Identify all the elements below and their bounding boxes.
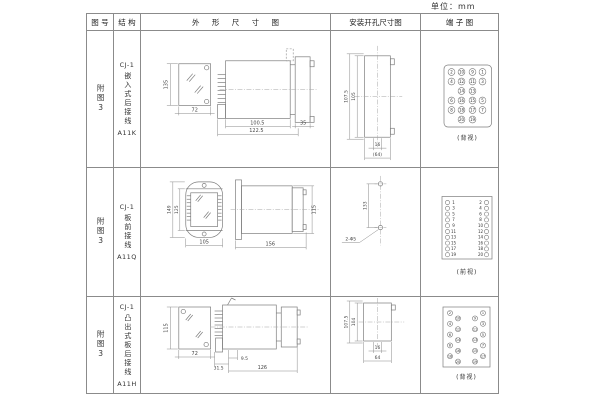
svg-text:17: 17 <box>480 354 484 358</box>
svg-text:7: 7 <box>481 107 484 112</box>
model-label: CJ-1 <box>120 203 135 211</box>
dim-front-height: 135 <box>163 80 169 89</box>
svg-text:3: 3 <box>452 206 455 211</box>
dim-hole-span: 133 <box>363 201 369 210</box>
svg-text:19: 19 <box>450 252 456 257</box>
datasheet-page: 单位：mm 图 号 结 构 外 形 尺 寸 图 安装开孔尺寸图 端 子 图 附图… <box>0 0 600 400</box>
fig-cell-row1: 附图3 <box>87 31 114 168</box>
struct-cell-row2: CJ-1 板前接线 A11Q <box>114 168 141 297</box>
unit-label: 单位：mm <box>431 1 476 12</box>
svg-text:20: 20 <box>477 252 483 257</box>
svg-text:16: 16 <box>458 98 464 103</box>
dim-depth-total: 122.5 <box>249 128 263 134</box>
svg-text:8: 8 <box>448 344 450 348</box>
type-code: A11K <box>118 129 137 137</box>
dim-side-length: 156 <box>266 241 275 247</box>
mount-cell-row1: 107.5 105 16 (64) <box>331 31 421 168</box>
svg-text:8: 8 <box>450 107 453 112</box>
outline-drawing-a11q: 149 125 105 156 115 <box>141 168 330 296</box>
svg-text:13: 13 <box>450 235 456 240</box>
side-dims <box>215 347 298 373</box>
struct-desc: 板前接线 <box>123 214 131 250</box>
mount-dims <box>342 184 379 243</box>
terminal-cell-row1: (背视) 2109141211314136161558181772019 <box>421 31 498 168</box>
svg-text:14: 14 <box>458 88 464 93</box>
header-struct: 结 构 <box>114 14 141 31</box>
svg-text:15: 15 <box>450 240 456 245</box>
dim-pin: 9.5 <box>241 356 248 362</box>
svg-text:7: 7 <box>452 217 455 222</box>
svg-text:9: 9 <box>471 69 474 74</box>
terminal-view-label: (前视) <box>456 268 477 276</box>
svg-text:10: 10 <box>458 69 464 74</box>
svg-text:13: 13 <box>472 338 476 342</box>
svg-text:2: 2 <box>448 311 450 315</box>
svg-text:16: 16 <box>477 240 483 245</box>
dim-cut-64: 64 <box>375 355 381 361</box>
svg-text:10: 10 <box>455 317 459 321</box>
front-view <box>179 64 211 106</box>
terminal-diagram-rear-staggered: (背视) 2110943121165141387161518172019 <box>422 303 498 387</box>
svg-text:9: 9 <box>452 223 455 228</box>
outline-drawing-a11k: 135 72 <box>141 31 330 167</box>
mount-dims <box>347 54 391 160</box>
svg-text:17: 17 <box>450 246 456 251</box>
mount-drawing-a11k: 107.5 105 16 (64) <box>331 31 420 167</box>
svg-text:1: 1 <box>452 200 455 205</box>
svg-text:1: 1 <box>481 69 484 74</box>
svg-text:4: 4 <box>450 79 453 84</box>
svg-text:12: 12 <box>455 327 459 331</box>
side-dims <box>236 186 315 250</box>
mount-cell-row3: 107.5 104 16 64 <box>331 297 421 393</box>
outline-drawing-a11h: 115 72 <box>141 297 330 393</box>
dim-front-outer: 149 <box>166 205 172 214</box>
svg-text:19: 19 <box>472 360 476 364</box>
svg-text:7: 7 <box>481 344 483 348</box>
svg-text:20: 20 <box>458 117 464 122</box>
terminal-diagram-rear: (背视) 2109141211314136161558181772019 <box>422 43 498 155</box>
fig-label: 附图3 <box>96 330 104 360</box>
svg-text:4: 4 <box>448 322 450 326</box>
terminal-cell-row2: (前视) 1234567891011121314151617181920 <box>421 168 498 297</box>
svg-text:10: 10 <box>477 223 483 228</box>
dim-flange: 35 <box>300 120 306 126</box>
terminal-view-label: (背视) <box>456 373 477 381</box>
svg-text:16: 16 <box>455 349 459 353</box>
dim-cut-inner: 105 <box>351 92 357 101</box>
dim-depth: 126 <box>258 365 267 371</box>
svg-text:2: 2 <box>450 69 453 74</box>
svg-text:18: 18 <box>447 354 451 358</box>
svg-text:11: 11 <box>469 79 475 84</box>
svg-text:5: 5 <box>452 211 455 216</box>
svg-text:18: 18 <box>477 246 483 251</box>
svg-text:15: 15 <box>469 98 475 103</box>
header-mount: 安装开孔尺寸图 <box>331 14 421 31</box>
struct-desc: 凸出式板后接线 <box>123 314 131 377</box>
svg-text:1: 1 <box>481 311 483 315</box>
svg-text:5: 5 <box>481 333 483 337</box>
svg-text:13: 13 <box>469 88 475 93</box>
svg-text:15: 15 <box>472 349 476 353</box>
dim-cut-16: 16 <box>375 345 381 351</box>
front-view <box>179 307 211 349</box>
dim-cut-64: (64) <box>373 152 382 158</box>
svg-text:20: 20 <box>455 360 459 364</box>
outline-cell-row1: 135 72 <box>141 31 331 168</box>
svg-text:6: 6 <box>479 211 482 216</box>
svg-text:12: 12 <box>477 229 483 234</box>
svg-text:12: 12 <box>458 79 464 84</box>
hole-callout: 2-Φ5 <box>345 236 356 242</box>
outline-cell-row3: 115 72 <box>141 297 331 393</box>
fig-label: 附图3 <box>96 217 104 247</box>
svg-text:14: 14 <box>477 235 483 240</box>
svg-text:3: 3 <box>481 79 484 84</box>
header-terminal: 端 子 图 <box>421 14 498 31</box>
type-code: A11Q <box>117 253 137 261</box>
latch-dashed <box>286 49 293 61</box>
dim-cut-16: 16 <box>375 142 381 148</box>
mount-drawing-a11h: 107.5 104 16 64 <box>331 297 420 393</box>
svg-text:8: 8 <box>479 217 482 222</box>
front-view <box>186 182 223 238</box>
dim-cut-outer: 107.5 <box>343 90 349 103</box>
dim-front-inner: 125 <box>174 205 180 214</box>
svg-text:19: 19 <box>469 117 475 122</box>
fig-cell-row2: 附图3 <box>87 168 114 297</box>
mount-dims <box>347 301 392 363</box>
spec-table: 图 号 结 构 外 形 尺 寸 图 安装开孔尺寸图 端 子 图 附图3 CJ-1… <box>86 13 499 394</box>
svg-text:3: 3 <box>481 322 483 326</box>
svg-text:4: 4 <box>479 206 482 211</box>
dim-front-height: 115 <box>163 323 169 333</box>
terminal-view-label: (背视) <box>457 134 478 142</box>
dim-front-width: 72 <box>192 351 198 357</box>
svg-text:11: 11 <box>450 229 456 234</box>
fig-label: 附图3 <box>96 84 104 114</box>
side-view <box>215 298 301 352</box>
dim-bezel: 31.5 <box>214 365 224 371</box>
svg-text:6: 6 <box>448 333 450 337</box>
struct-cell-row1: CJ-1 嵌入式后接线 A11K <box>114 31 141 168</box>
type-code: A11H <box>117 380 137 388</box>
svg-text:18: 18 <box>458 107 464 112</box>
mount-drawing-a11q: 133 2-Φ5 <box>331 168 420 296</box>
header-outline: 外 形 尺 寸 图 <box>141 14 331 31</box>
dim-front-width: 72 <box>192 107 198 113</box>
fig-cell-row3: 附图3 <box>87 297 114 393</box>
struct-desc: 嵌入式后接线 <box>123 72 131 126</box>
svg-text:11: 11 <box>472 327 476 331</box>
svg-text:9: 9 <box>473 317 475 321</box>
model-label: CJ-1 <box>120 303 135 311</box>
svg-text:5: 5 <box>481 98 484 103</box>
svg-text:6: 6 <box>450 98 453 103</box>
svg-text:17: 17 <box>469 107 475 112</box>
header-fig: 图 号 <box>87 14 114 31</box>
svg-text:14: 14 <box>455 338 459 342</box>
dim-front-width: 105 <box>199 239 208 245</box>
dim-depth: 100.5 <box>250 120 264 126</box>
struct-cell-row3: CJ-1 凸出式板后接线 A11H <box>114 297 141 393</box>
dim-cut-inner: 104 <box>351 318 357 327</box>
dim-side-height: 115 <box>312 205 318 214</box>
outline-cell-row2: 149 125 105 156 115 <box>141 168 331 297</box>
terminal-diagram-front: (前视) 1234567891011121314151617181920 <box>422 182 498 282</box>
mount-cell-row2: 133 2-Φ5 <box>331 168 421 297</box>
terminal-cell-row3: (背视) 2110943121165141387161518172019 <box>421 297 498 393</box>
model-label: CJ-1 <box>120 61 135 69</box>
dim-cut-outer: 107.5 <box>343 315 349 328</box>
svg-text:2: 2 <box>479 200 482 205</box>
